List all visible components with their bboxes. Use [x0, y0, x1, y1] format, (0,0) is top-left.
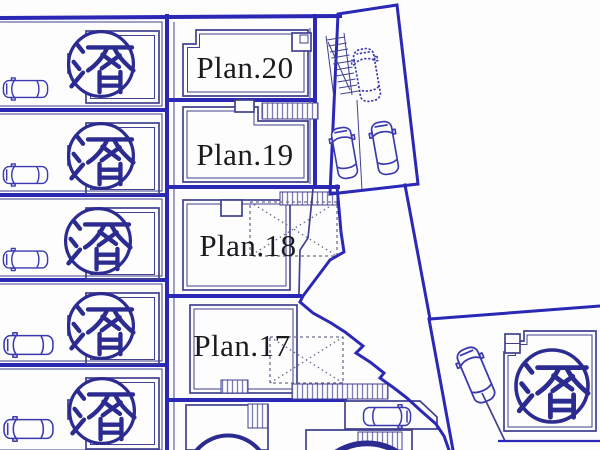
site-plan-map: Plan.20 Plan.19 Plan.18 — [0, 0, 600, 450]
sold-stamp — [69, 124, 134, 189]
sold-plot-left-3 — [0, 199, 162, 279]
plan-label-20: Plan.20 — [196, 50, 293, 85]
sold-stamp — [66, 209, 131, 274]
car-icon — [4, 417, 53, 441]
car-icon — [3, 78, 47, 100]
steps-hatch — [280, 192, 337, 205]
sold-stamp — [69, 32, 134, 97]
plan-plots: Plan.20 Plan.19 Plan.18 — [170, 16, 437, 450]
plot-plan-18: Plan.18 — [183, 189, 337, 294]
car-icon — [4, 333, 53, 357]
sold-stamp — [309, 443, 424, 450]
sold-plot-left-1 — [0, 22, 162, 106]
driveway-hatch — [292, 384, 388, 399]
bottom-right-block — [452, 331, 600, 441]
car-icon — [364, 405, 411, 429]
car-icon — [3, 164, 47, 186]
plan-label-19: Plan.19 — [196, 137, 293, 172]
sold-plot-right — [504, 331, 596, 431]
car-icon — [367, 120, 402, 176]
sold-stamp — [69, 294, 134, 359]
steps-hatch — [262, 103, 318, 119]
sold-plot-left-5 — [0, 369, 162, 450]
plan-label-18: Plan.18 — [199, 228, 296, 263]
plot-plan-19: Plan.19 — [183, 100, 318, 182]
bottom-cut-plot-left — [186, 404, 269, 450]
sold-stamp — [70, 379, 135, 444]
sold-stamp — [188, 436, 269, 450]
sold-plot-left-2 — [0, 114, 162, 194]
car-icon — [3, 248, 47, 270]
sold-stamp — [516, 350, 588, 422]
plot-plan-20: Plan.20 — [183, 30, 311, 96]
sold-plot-left-4 — [0, 284, 162, 364]
car-icon-dashed — [349, 47, 384, 103]
car-icon — [452, 344, 500, 407]
site-plan-svg: Plan.20 Plan.19 Plan.18 — [0, 0, 600, 450]
parking-area — [326, 5, 418, 194]
plan-label-17: Plan.17 — [193, 328, 290, 363]
